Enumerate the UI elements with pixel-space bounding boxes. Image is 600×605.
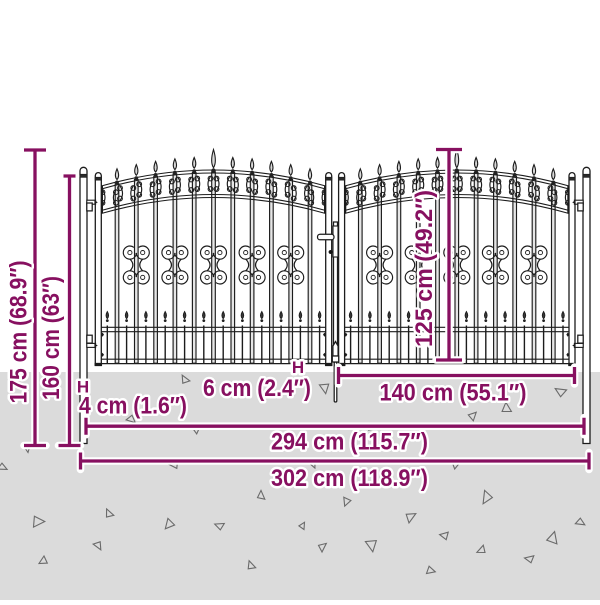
svg-text:302 cm (118.9″): 302 cm (118.9″) bbox=[271, 465, 428, 492]
svg-text:H: H bbox=[77, 378, 89, 397]
svg-text:125 cm (49.2″): 125 cm (49.2″) bbox=[411, 190, 438, 347]
svg-text:294 cm (115.7″): 294 cm (115.7″) bbox=[271, 429, 428, 456]
svg-text:175 cm (68.9″): 175 cm (68.9″) bbox=[6, 261, 33, 404]
svg-text:160 cm (63″): 160 cm (63″) bbox=[38, 276, 65, 400]
svg-text:6 cm (2.4″): 6 cm (2.4″) bbox=[203, 375, 311, 402]
svg-text:H: H bbox=[292, 358, 304, 377]
svg-text:140 cm (55.1″): 140 cm (55.1″) bbox=[380, 380, 527, 407]
svg-text:4 cm (1.6″): 4 cm (1.6″) bbox=[79, 393, 187, 420]
